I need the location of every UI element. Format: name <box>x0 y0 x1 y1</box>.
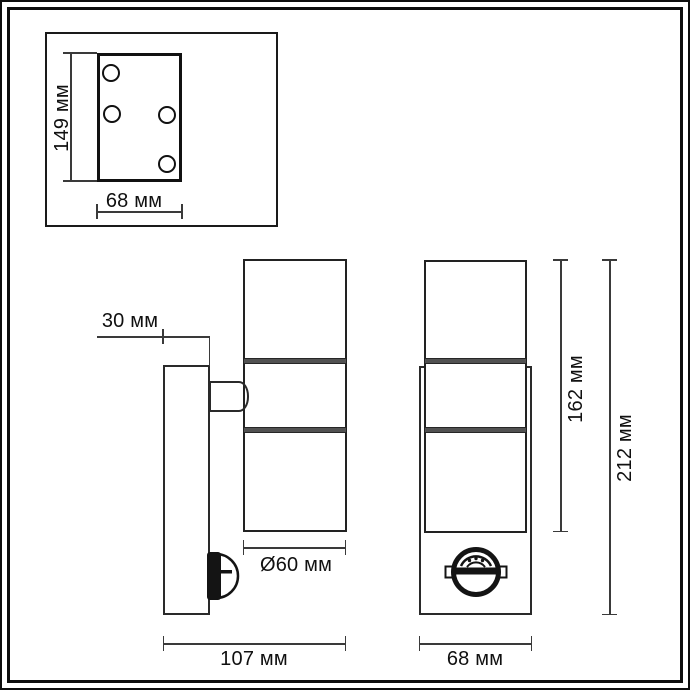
front-view-trim-ring-bottom <box>425 427 526 433</box>
dim-label-body-height: 162 мм <box>566 349 586 429</box>
dim-tick <box>163 636 165 651</box>
dim-cap <box>553 531 568 533</box>
mounting-hole-mid-right <box>158 106 176 124</box>
dim-label-diameter: Ø60 мм <box>256 555 336 575</box>
dim-ext-line <box>209 336 211 366</box>
mounting-hole-mid-left <box>103 105 121 123</box>
dim-label-plate-width: 68 мм <box>94 191 174 211</box>
mounting-hole-bottom-right <box>158 155 176 173</box>
dim-label-total-height: 212 мм <box>615 408 635 488</box>
dim-tick <box>162 329 164 344</box>
dim-cap <box>602 614 617 616</box>
dim-tick <box>345 636 347 651</box>
dim-line-body-height <box>560 259 562 532</box>
dim-label-total-depth: 107 мм <box>214 649 294 669</box>
side-view-trim-ring-top <box>244 358 346 364</box>
dim-tick <box>345 540 347 555</box>
technical-drawing-canvas: 149 мм 68 мм 30 мм Ø60 мм 107 мм <box>0 0 690 690</box>
front-view-trim-ring-top <box>425 358 526 364</box>
dim-line-total-height <box>609 259 611 615</box>
side-view-mounting-arm <box>209 381 249 412</box>
dim-line-total-depth <box>163 643 346 645</box>
side-view-lamp-body <box>243 259 347 532</box>
mounting-hole-top-left <box>102 64 120 82</box>
dim-line-plate-depth <box>97 336 210 338</box>
motion-sensor-side-icon <box>200 548 242 604</box>
side-view-trim-ring-bottom <box>244 427 346 433</box>
dim-label-front-width: 68 мм <box>435 649 515 669</box>
dim-tick <box>181 204 183 219</box>
dim-line-front-width <box>419 643 532 645</box>
front-view-lamp-body <box>424 260 527 533</box>
motion-sensor-front-icon <box>440 540 512 604</box>
dim-ext-line <box>63 52 97 54</box>
dim-label-plate-height: 149 мм <box>52 78 72 158</box>
dim-tick <box>419 636 421 651</box>
dim-tick <box>243 540 245 555</box>
dim-line-diameter <box>243 547 346 549</box>
dim-ext-line <box>63 180 97 182</box>
dim-tick <box>531 636 533 651</box>
dim-label-plate-depth: 30 мм <box>90 311 170 331</box>
